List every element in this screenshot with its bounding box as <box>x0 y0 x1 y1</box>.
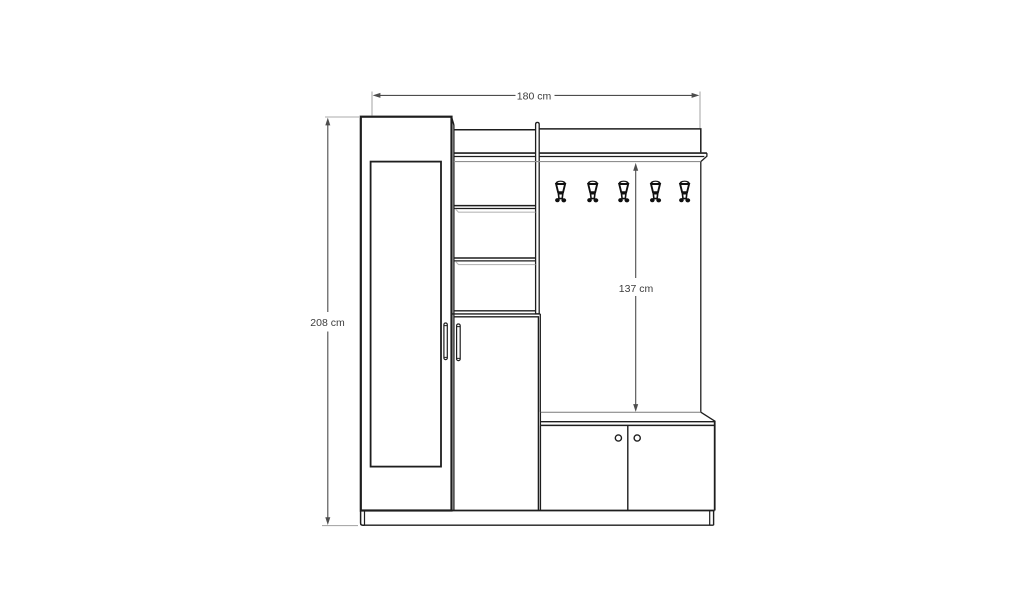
svg-text:208 cm: 208 cm <box>310 317 345 329</box>
svg-text:137 cm: 137 cm <box>619 283 654 295</box>
svg-text:180 cm: 180 cm <box>517 91 552 103</box>
